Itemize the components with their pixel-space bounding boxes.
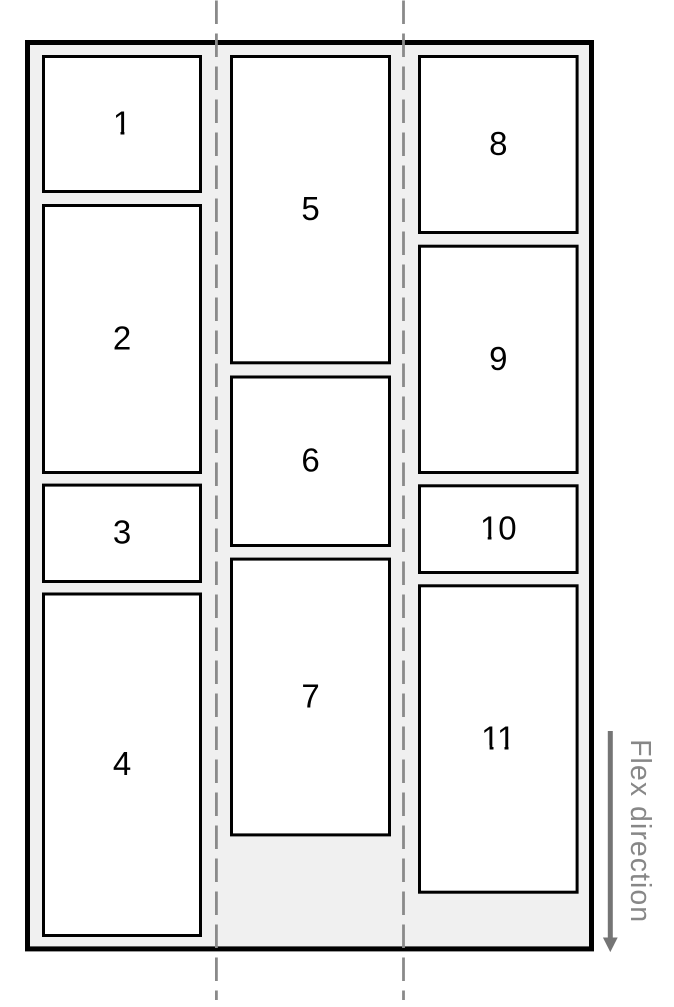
svg-text:2: 2 xyxy=(113,319,131,356)
svg-text:8: 8 xyxy=(489,125,507,162)
svg-text:7: 7 xyxy=(301,677,319,714)
svg-text:9: 9 xyxy=(489,340,507,377)
svg-text:6: 6 xyxy=(301,442,319,479)
svg-text:4: 4 xyxy=(113,745,131,782)
svg-text:3: 3 xyxy=(113,514,131,551)
svg-text:Flex direction: Flex direction xyxy=(624,739,656,922)
svg-text:5: 5 xyxy=(301,190,319,227)
